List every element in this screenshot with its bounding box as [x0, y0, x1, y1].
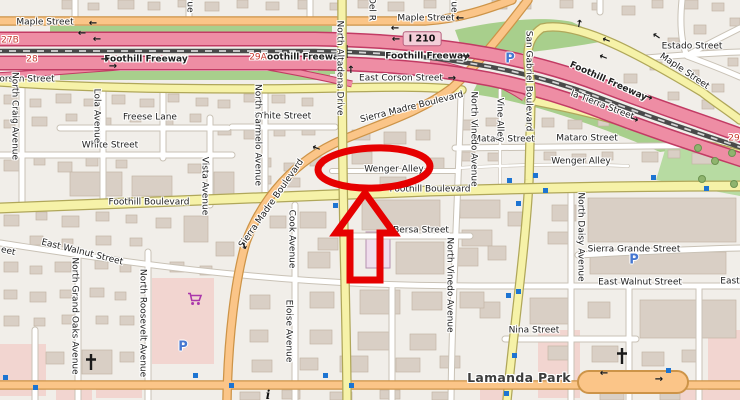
- building: [250, 330, 268, 342]
- building: [56, 94, 71, 103]
- street-label: Freese Lane: [123, 114, 177, 123]
- building: [668, 92, 679, 100]
- street-label: White Street: [82, 142, 138, 151]
- building: [488, 246, 506, 260]
- oneway-arrow-icon: ↑: [574, 19, 584, 30]
- building: [588, 302, 610, 318]
- traffic-signal-icon: [229, 383, 234, 388]
- street-label: Del R: [367, 0, 376, 21]
- street-label: North Craig Avenue: [10, 72, 19, 160]
- building: [58, 162, 72, 172]
- street-label: North Grand Oaks Avenue: [70, 257, 79, 374]
- traffic-signal-icon: [516, 201, 521, 206]
- oneway-arrow-icon: ←: [456, 14, 464, 24]
- building: [530, 298, 572, 324]
- route-shield-i210: I 210: [403, 31, 442, 46]
- building: [542, 118, 554, 127]
- street-label: Cook Avenue: [287, 210, 296, 269]
- street-label: White Street: [255, 113, 311, 122]
- road-widening: [578, 371, 688, 393]
- building: [46, 352, 64, 364]
- building: [624, 74, 637, 83]
- building: [388, 2, 404, 11]
- oneway-arrow-icon: ↑: [347, 66, 355, 76]
- building: [4, 160, 20, 171]
- building: [86, 158, 98, 166]
- oneway-arrow-icon: →: [462, 52, 470, 62]
- oneway-arrow-icon: ←: [93, 35, 101, 45]
- exit-number-label: 27B: [1, 37, 19, 46]
- building: [240, 392, 260, 400]
- building: [652, 0, 663, 8]
- oneway-arrow-icon: ←: [391, 24, 399, 34]
- building: [730, 18, 740, 26]
- street-label: Lola Avenue: [92, 89, 101, 144]
- building: [728, 58, 738, 66]
- building: [32, 117, 47, 126]
- street-label: Wenger Alley: [551, 158, 610, 167]
- building: [560, 0, 573, 8]
- building: [622, 6, 635, 15]
- building: [132, 176, 172, 196]
- building: [214, 172, 234, 196]
- building: [410, 334, 436, 350]
- street-label: Wenger Alley: [364, 166, 423, 175]
- tree-icon: [728, 149, 736, 157]
- building: [308, 252, 330, 268]
- traffic-signal-icon: [512, 353, 517, 358]
- street-label: East: [720, 278, 739, 287]
- traffic-signal-icon: [666, 368, 671, 373]
- oneway-arrow-icon: ←: [392, 35, 400, 45]
- exit-number-label: 28: [26, 56, 37, 65]
- building: [96, 316, 108, 324]
- shopping-cart-icon: [187, 292, 203, 311]
- traffic-signal-icon: [33, 385, 38, 390]
- traffic-signal-icon: [543, 188, 548, 193]
- building: [120, 316, 134, 325]
- building: [190, 114, 201, 122]
- building: [488, 153, 499, 161]
- building: [642, 352, 664, 366]
- building: [318, 238, 338, 250]
- church-icon: [83, 352, 99, 376]
- building: [88, 3, 99, 10]
- street-label: North Vinedo Avenue: [445, 237, 454, 332]
- building: [30, 266, 42, 274]
- street-label: Foothill Freeway: [385, 53, 468, 62]
- oneway-arrow-icon: ←: [78, 29, 86, 39]
- building: [310, 292, 334, 308]
- street-label: Maple Street: [16, 19, 73, 28]
- parking-icon: P: [505, 53, 515, 66]
- building: [130, 238, 142, 246]
- building: [184, 216, 208, 242]
- oneway-arrow-icon: →: [655, 375, 663, 385]
- building: [36, 212, 47, 220]
- traffic-signal-icon: [651, 175, 656, 180]
- building: [684, 0, 698, 9]
- street-label: San Gabriel Boulevard: [524, 31, 533, 132]
- tree-icon: [711, 157, 719, 165]
- building: [642, 152, 658, 162]
- building: [660, 393, 680, 400]
- exit-number-label: 29: [728, 135, 739, 144]
- building: [250, 295, 270, 309]
- building: [4, 290, 17, 299]
- building: [358, 332, 392, 350]
- street-label: Nina Street: [509, 327, 560, 336]
- building: [352, 152, 372, 164]
- street-label: Estado Street: [662, 43, 723, 52]
- parking-icon: P: [629, 254, 639, 267]
- traffic-signal-icon: [193, 373, 198, 378]
- building: [588, 198, 736, 242]
- building: [126, 215, 137, 223]
- building: [302, 98, 313, 106]
- tree-icon: [730, 180, 738, 188]
- street-label: North Carmelo Avenue: [253, 84, 262, 186]
- building: [252, 360, 272, 372]
- building: [118, 0, 134, 9]
- building: [237, 0, 248, 8]
- oneway-arrow-icon: →: [109, 62, 117, 72]
- street-label: Maple Street: [397, 15, 454, 24]
- traffic-signal-icon: [507, 178, 512, 183]
- building: [300, 212, 326, 228]
- map-canvas[interactable]: Maple StreetMaple StreetMaple StreetEsta…: [0, 0, 740, 400]
- building: [396, 358, 420, 372]
- traffic-signal-icon: [704, 186, 709, 191]
- building: [270, 216, 286, 228]
- building: [712, 84, 724, 92]
- building: [96, 212, 109, 221]
- street-label: North Altadena Drive: [335, 20, 344, 115]
- traffic-signal-icon: [3, 375, 8, 380]
- building: [668, 150, 680, 158]
- building: [424, 0, 436, 8]
- building: [432, 392, 450, 400]
- tree-icon: [694, 144, 702, 152]
- building: [148, 2, 160, 10]
- street-label: orson Street: [0, 76, 55, 85]
- street-label: Bersa Street: [393, 227, 449, 236]
- building: [548, 346, 568, 360]
- building: [694, 25, 706, 34]
- street-label: Vine Alley: [495, 98, 504, 143]
- church-icon: [614, 346, 630, 370]
- street-label: Vista Avenue: [200, 157, 209, 216]
- oneway-arrow-icon: ←: [600, 369, 608, 379]
- building: [272, 95, 285, 103]
- building: [460, 200, 500, 218]
- info-icon: i: [266, 389, 271, 400]
- building: [62, 216, 79, 227]
- building: [266, 2, 279, 10]
- traffic-signal-icon: [504, 391, 509, 396]
- building: [168, 94, 179, 102]
- building: [140, 99, 154, 107]
- building: [460, 292, 484, 308]
- building: [300, 358, 318, 370]
- traffic-signal-icon: [506, 293, 511, 298]
- building: [30, 292, 46, 302]
- building: [112, 95, 125, 104]
- street-label: North Vinedo Avenue: [469, 91, 478, 186]
- street-label: Eloise Avenue: [284, 300, 293, 363]
- building: [30, 99, 41, 107]
- oneway-arrow-icon: ←: [89, 19, 97, 29]
- building: [96, 236, 111, 245]
- tree-icon: [698, 175, 706, 183]
- building: [196, 98, 208, 106]
- building: [70, 172, 122, 196]
- building: [120, 352, 134, 362]
- parking-icon: P: [178, 341, 188, 354]
- building: [4, 262, 18, 272]
- building: [396, 242, 444, 274]
- street-label: North Daisy Avenue: [576, 192, 585, 281]
- street-label: ue: [185, 1, 194, 12]
- building: [4, 215, 19, 226]
- traffic-signal-icon: [533, 173, 538, 178]
- building: [640, 300, 736, 338]
- building: [416, 130, 430, 140]
- building: [412, 292, 442, 310]
- building: [218, 100, 230, 108]
- traffic-signal-icon: [323, 373, 328, 378]
- street-label: North Roosevelt Avenue: [138, 269, 147, 377]
- street-label: Foothill Freeway: [261, 54, 344, 63]
- building: [548, 232, 568, 244]
- retail-area: [480, 388, 506, 400]
- building: [115, 292, 126, 300]
- exit-number-label: 29A: [249, 54, 267, 63]
- building: [205, 2, 219, 11]
- building: [156, 218, 171, 228]
- building: [310, 330, 332, 344]
- building: [116, 160, 127, 168]
- traffic-signal-icon: [349, 383, 354, 388]
- street-label: Mataro Street: [556, 135, 618, 144]
- building: [384, 132, 406, 144]
- street-label: ue: [449, 1, 458, 12]
- building: [66, 114, 77, 121]
- oneway-arrow-icon: →: [448, 74, 456, 84]
- traffic-signal-icon: [516, 289, 521, 294]
- building: [712, 3, 724, 11]
- building: [568, 120, 582, 129]
- traffic-signal-icon: [333, 203, 338, 208]
- building: [34, 318, 45, 326]
- building: [4, 316, 19, 326]
- place-label: Lamanda Park: [467, 372, 571, 385]
- street-label: Foothill Boulevard: [109, 199, 190, 208]
- street-label: East Walnut Street: [598, 279, 682, 288]
- street-label: East Corson Street: [359, 75, 443, 84]
- building: [216, 242, 234, 256]
- street-label: Foothill Boulevard: [390, 186, 471, 195]
- retail-area: [56, 390, 92, 400]
- building: [90, 288, 104, 297]
